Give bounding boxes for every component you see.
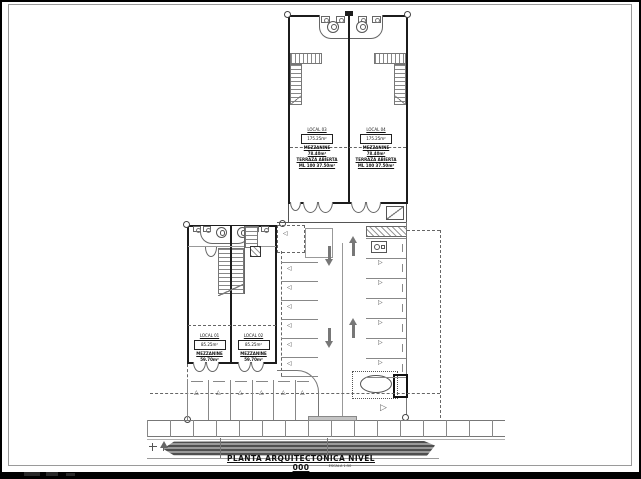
unit-area: 175.25m² [301, 134, 333, 144]
parking-divider-line [366, 298, 406, 299]
unit-name: LOCAL 04 [366, 127, 385, 133]
stair-run [290, 53, 322, 64]
cart-body-icon [381, 245, 385, 249]
parking-space-icon: ◁ [287, 361, 292, 367]
sidewalk-joint [285, 420, 286, 437]
drawing-scale: ESCALA 1:50 [280, 464, 400, 468]
parking-divider-line [366, 258, 406, 259]
sidewalk-joint [262, 420, 263, 437]
survey-cross-icon [149, 443, 157, 451]
sidewalk-joint [400, 420, 401, 437]
stall-marker-icon: △ [194, 390, 199, 396]
traffic-arrow-up [352, 243, 355, 256]
sidewalk-joint [423, 420, 424, 437]
stall-line [295, 380, 296, 420]
parking-divider-line [366, 377, 406, 378]
stair-run [245, 226, 258, 248]
stall-tick [235, 381, 247, 382]
sidewalk-joint [446, 420, 447, 437]
parking-divider-line [281, 376, 318, 377]
stall-line [187, 380, 188, 420]
sidewalk-joint [331, 420, 332, 437]
parking-divider-line [281, 357, 318, 358]
toilet-icon [216, 227, 227, 238]
parking-divider-line [366, 338, 406, 339]
sink-icon [193, 226, 201, 232]
parking-space-icon: ◁ [287, 342, 292, 348]
stall-tick [256, 381, 268, 382]
wall-segment [288, 204, 289, 222]
stall-marker-icon: △ [300, 390, 305, 396]
parking-divider-line [281, 262, 318, 263]
parking-space-icon: ◁ [287, 266, 292, 272]
sink-icon [261, 226, 269, 232]
parking-divider-line [281, 338, 318, 339]
parking-boundary-line [277, 222, 407, 223]
sidewalk-joint [492, 420, 493, 437]
stall-line [252, 380, 253, 420]
border-artifact [46, 472, 58, 476]
ramp-arrow-icon: ▷ [380, 404, 387, 413]
parking-divider-line [366, 238, 406, 239]
sidewalk-joint [216, 420, 217, 437]
unit-name: LOCAL 01 [200, 333, 219, 339]
stall-line [230, 380, 231, 420]
parking-space-icon: ▷ [378, 340, 383, 346]
stair-break-line [290, 95, 302, 105]
sidewalk-joint [469, 420, 470, 437]
parking-space-icon: ▷ [378, 260, 383, 266]
border-artifact [66, 473, 75, 476]
stall-end-tick [402, 284, 403, 292]
toilet-icon [327, 21, 339, 33]
stair-run [374, 53, 406, 64]
sink-icon [372, 16, 381, 23]
parking-space-icon: ▷ [378, 320, 383, 326]
ramp-slope-line [387, 207, 403, 219]
parking-divider-line [281, 281, 318, 282]
grid-marker [284, 11, 291, 18]
unit-area: 85.25m² [194, 340, 226, 350]
sidewalk-joint [170, 420, 171, 437]
sidewalk-joint [354, 420, 355, 437]
unit-label: LOCAL 03 175.25m² MEZZANINE 78.40m² TERR… [294, 127, 340, 169]
unit-mezzanine: MEZZANINE 78.40m² [353, 145, 399, 157]
stall-marker-icon: △ [259, 390, 264, 396]
stall-end-tick [402, 364, 403, 372]
unit-note: ML 100 37.50m² [353, 163, 399, 169]
stall-line [208, 380, 209, 420]
stall-end-tick [402, 324, 403, 332]
cart-space-icon [371, 241, 387, 253]
reserved-space-box [277, 225, 305, 253]
sidewalk-joint [147, 420, 148, 437]
sidewalk-joint [193, 420, 194, 437]
parking-space-icon: ▷ [378, 360, 383, 366]
parking-divider-line [281, 319, 318, 320]
sidewalk-ramp-strip [308, 416, 357, 421]
parking-space-icon: ◁ [287, 304, 292, 310]
stair-break-line [394, 95, 406, 105]
stall-marker-icon: △ [238, 390, 243, 396]
parking-divider-line [366, 318, 406, 319]
unit-mezzanine: MEZZANINE 78.40m² [294, 145, 340, 157]
stall-marker-icon: △ [281, 390, 286, 396]
drawing-title: PLANTA ARQUITECTONICA NIVEL 000 [221, 454, 381, 472]
hatched-zone [366, 226, 407, 237]
unit-label: LOCAL 01 85.25m² MEZZANINE 59.70m² [189, 333, 230, 363]
stall-line [273, 380, 274, 420]
stall-end-tick [402, 344, 403, 352]
wall-segment [406, 204, 407, 222]
stall-end-tick [402, 244, 403, 252]
stair-shaft-wall [244, 226, 245, 294]
parking-divider-line [366, 358, 406, 359]
grid-marker [404, 11, 411, 18]
traffic-arrow-up [352, 325, 355, 338]
unit-note: ML 100 37.50m² [294, 163, 340, 169]
party-wall [348, 15, 350, 204]
parking-space-icon: ◁ [283, 231, 288, 237]
parking-divider-line [366, 278, 406, 279]
curb-line [147, 439, 505, 440]
property-dashed-line [440, 230, 441, 418]
stair-break-line [218, 284, 244, 296]
grid-marker [183, 221, 190, 228]
parking-space-icon: ◁ [287, 323, 292, 329]
traffic-arrow-down [328, 328, 331, 341]
unit-name: LOCAL 03 [307, 127, 326, 133]
parking-space-icon: ◁ [287, 285, 292, 291]
parking-divider-line [281, 300, 318, 301]
border-artifact [24, 472, 40, 476]
stall-tick [191, 381, 203, 382]
drive-lane-line [342, 243, 343, 418]
unit-area: 175.25m² [360, 134, 392, 144]
sidewalk-joint [377, 420, 378, 437]
unit-name: LOCAL 02 [244, 333, 263, 339]
sink-icon [203, 226, 211, 232]
parking-space-icon: ▷ [378, 280, 383, 286]
traffic-arrow-down [328, 246, 331, 259]
unit-label: LOCAL 04 175.25m² MEZZANINE 78.40m² TERR… [353, 127, 399, 169]
shaft-hatch [250, 246, 261, 257]
mezzanine-dashed-line [188, 325, 276, 326]
stall-tick [213, 381, 225, 382]
stall-tick [278, 381, 290, 382]
parking-space-icon: ▷ [378, 300, 383, 306]
property-dashed-line [407, 230, 440, 231]
toilet-icon [356, 21, 368, 33]
unit-label: LOCAL 02 85.25m² MEZZANINE 59.70m² [233, 333, 274, 363]
access-ramp [386, 206, 404, 220]
sidewalk-band [147, 420, 505, 437]
stall-tick [297, 381, 309, 382]
column-marker [345, 11, 353, 16]
stall-end-tick [402, 304, 403, 312]
stall-marker-icon: △ [216, 390, 221, 396]
tree-icon [160, 441, 168, 448]
partition-line [188, 246, 276, 247]
stall-end-tick [402, 264, 403, 272]
screenshot: LOCAL 03 175.25m² MEZZANINE 78.40m² TERR… [0, 0, 641, 479]
unit-area: 85.25m² [238, 340, 270, 350]
cart-wheel-icon [374, 244, 380, 250]
sidewalk-joint [239, 420, 240, 437]
sidewalk-joint [308, 420, 309, 437]
